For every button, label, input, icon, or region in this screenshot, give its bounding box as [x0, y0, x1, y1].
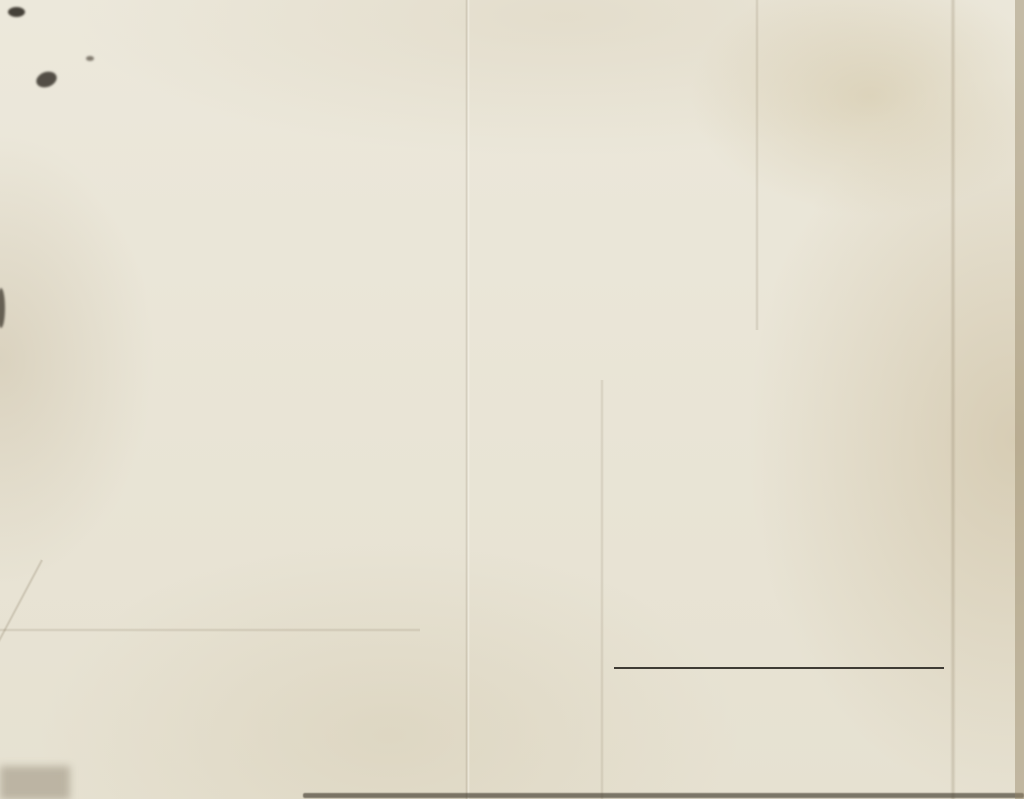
schematic-canvas — [0, 0, 1024, 799]
footer-rule — [614, 667, 944, 669]
footer — [614, 657, 944, 669]
scanned-schematic-page — [0, 0, 1024, 799]
